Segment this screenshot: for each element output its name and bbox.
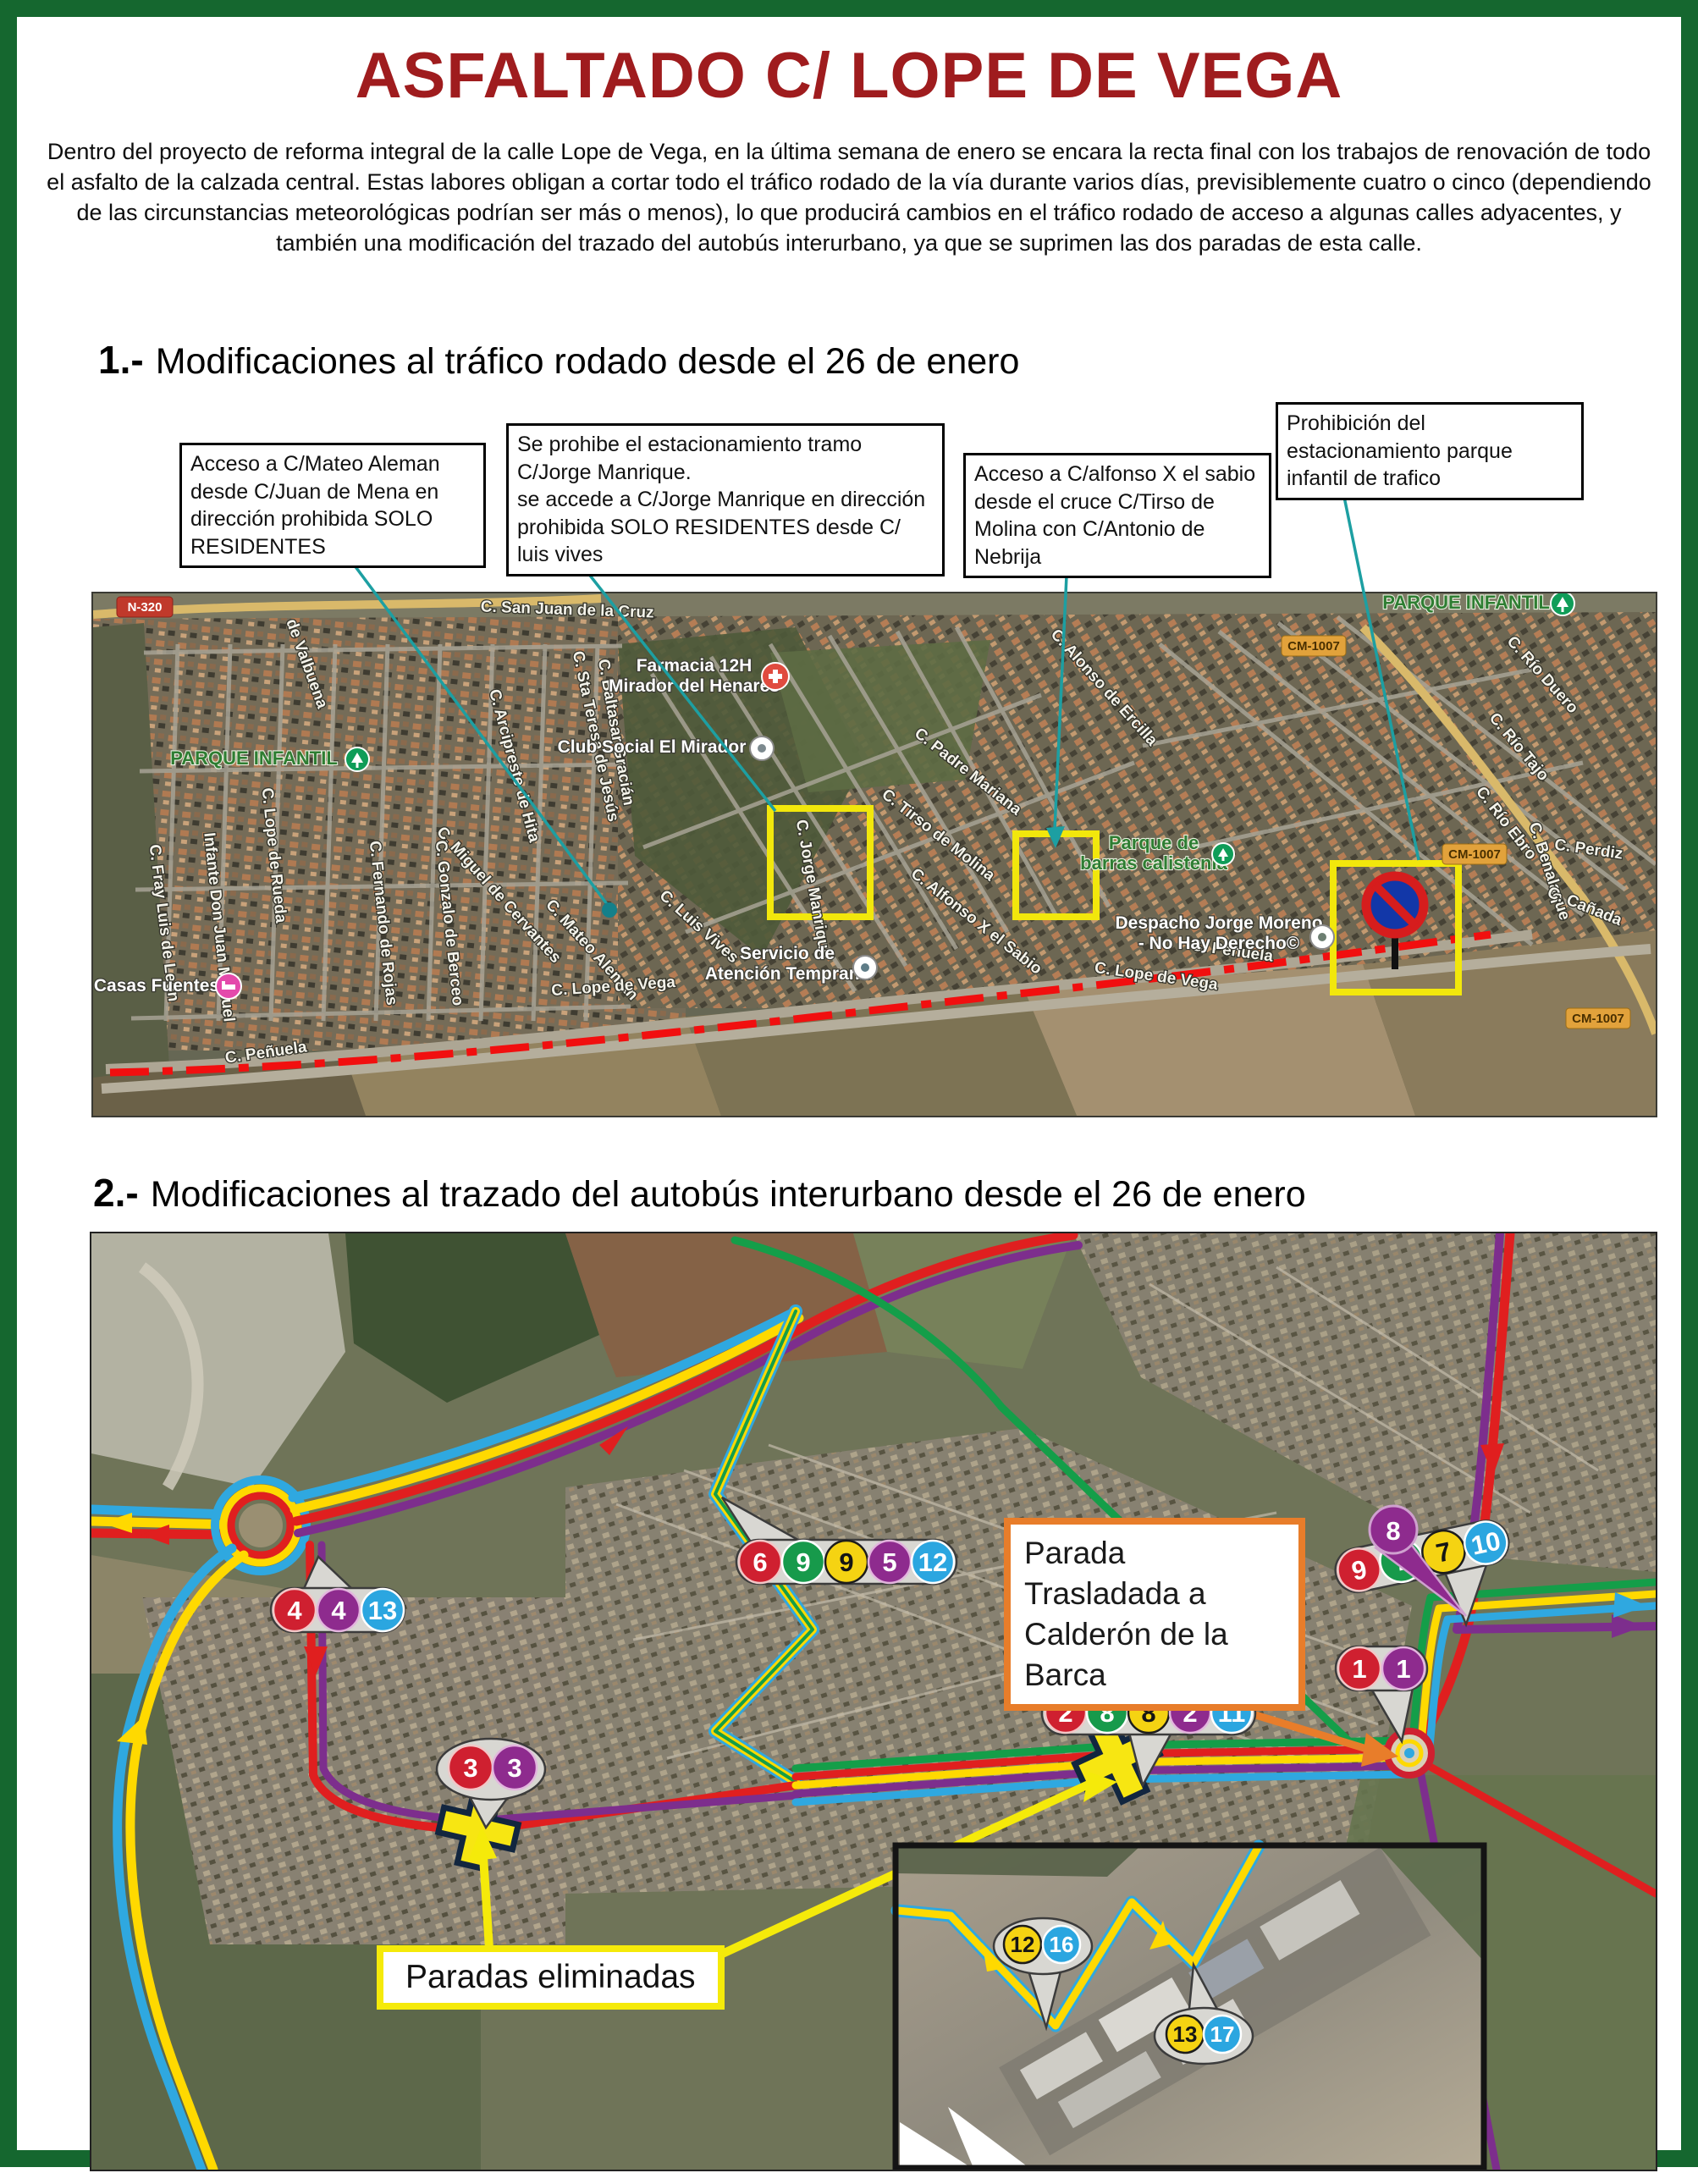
road-badge-cm1007-a: CM-1007 xyxy=(1282,636,1346,656)
road-badge-cm1007-b: CM-1007 xyxy=(1442,844,1507,864)
map-2-bus-routes-satellite: 4 4 13 6 9 9 5 12 9 7 7 10 1 1 2 8 8 2 1… xyxy=(91,1233,1656,2170)
svg-text:- No Hay Derecho©: - No Hay Derecho© xyxy=(1138,934,1300,953)
svg-text:5: 5 xyxy=(882,1547,896,1577)
svg-text:3: 3 xyxy=(507,1753,521,1783)
svg-text:3: 3 xyxy=(463,1753,477,1783)
svg-text:1: 1 xyxy=(1352,1654,1366,1684)
svg-text:CM-1007: CM-1007 xyxy=(1287,639,1340,654)
callout-parque-infantil: Prohibición del estacionamiento parque i… xyxy=(1276,402,1584,500)
svg-text:6: 6 xyxy=(753,1547,767,1577)
poster-asfaltado: { "title": "ASFALTADO C/ LOPE DE VEGA", … xyxy=(0,0,1698,2167)
callout-parada-trasladada: Parada Trasladada a Calderón de la Barca xyxy=(1004,1518,1305,1711)
svg-text:1: 1 xyxy=(1396,1654,1410,1684)
place-pin-icon xyxy=(750,736,774,760)
svg-text:Despacho Jorge Moreno: Despacho Jorge Moreno xyxy=(1115,913,1322,933)
svg-text:PARQUE INFANTIL: PARQUE INFANTIL xyxy=(170,747,338,769)
callout-paradas-eliminadas: Paradas eliminadas xyxy=(377,1945,725,2010)
hotel-pin-icon xyxy=(216,973,241,999)
svg-text:17: 17 xyxy=(1210,2021,1235,2047)
section-1-number: 1.- xyxy=(98,338,144,382)
road-badge-cm1007-c: CM-1007 xyxy=(1566,1008,1630,1029)
tree-pin-icon xyxy=(1212,843,1234,865)
inset-map-industrial: 12 16 13 17 xyxy=(896,1845,1484,2168)
tree-pin-icon xyxy=(1551,593,1574,615)
svg-text:9: 9 xyxy=(839,1547,853,1577)
section-1-heading: 1.-Modificaciones al tráfico rodado desd… xyxy=(98,337,1019,383)
section-1-title: Modificaciones al tráfico rodado desde e… xyxy=(156,341,1020,382)
section-2-title: Modificaciones al trazado del autobús in… xyxy=(151,1174,1306,1215)
tree-pin-icon xyxy=(345,747,369,771)
svg-text:10: 10 xyxy=(1469,1525,1503,1560)
svg-text:CM-1007: CM-1007 xyxy=(1448,847,1501,862)
svg-text:N-320: N-320 xyxy=(128,600,163,615)
poi-club-social: Club Social El Mirador xyxy=(558,736,774,760)
svg-text:12: 12 xyxy=(918,1547,947,1577)
map-2-canvas: 4 4 13 6 9 9 5 12 9 7 7 10 1 1 2 8 8 2 1… xyxy=(91,1233,1656,2170)
callout-jorge-manrique: Se prohibe el estacionamiento tramo C/Jo… xyxy=(506,423,945,576)
svg-text:barras calistenia: barras calistenia xyxy=(1080,852,1227,874)
svg-text:Servicio de: Servicio de xyxy=(740,944,835,963)
svg-text:13: 13 xyxy=(368,1596,397,1625)
svg-text:PARQUE INFANTIL: PARQUE INFANTIL xyxy=(1382,593,1550,613)
map-1-traffic-satellite: C. San Juan de la Cruz C. Sta Teresa de … xyxy=(93,593,1656,1116)
svg-text:Parque de: Parque de xyxy=(1109,832,1199,853)
place-pin-icon xyxy=(1310,925,1334,949)
svg-text:9: 9 xyxy=(796,1547,810,1577)
svg-text:Farmacia 12H: Farmacia 12H xyxy=(637,656,753,676)
svg-text:4: 4 xyxy=(287,1596,302,1625)
map-1-canvas: C. San Juan de la Cruz C. Sta Teresa de … xyxy=(93,593,1656,1116)
svg-text:Casas Fuentes: Casas Fuentes xyxy=(94,976,219,995)
svg-text:Atención Temprana: Atención Temprana xyxy=(705,964,870,984)
place-pin-icon xyxy=(853,956,877,979)
svg-text:8: 8 xyxy=(1386,1516,1400,1546)
svg-text:Club Social El Mirador: Club Social El Mirador xyxy=(558,737,747,757)
callout-mateo-aleman: Acceso a C/Mateo Aleman desde C/Juan de … xyxy=(179,443,486,568)
callout-alfonso-x: Acceso a C/alfonso X el sabio desde el c… xyxy=(963,453,1271,578)
svg-text:13: 13 xyxy=(1173,2021,1198,2047)
intro-paragraph: Dentro del proyecto de reforma integral … xyxy=(42,137,1656,259)
svg-text:4: 4 xyxy=(331,1596,346,1625)
section-2-number: 2.- xyxy=(93,1171,139,1215)
svg-text:Mirador del Henares: Mirador del Henares xyxy=(609,676,780,696)
section-2-heading: 2.-Modificaciones al trazado del autobús… xyxy=(93,1170,1306,1216)
page-title: ASFALTADO C/ LOPE DE VEGA xyxy=(17,39,1681,113)
park-label-infantil-east: PARQUE INFANTIL xyxy=(1382,593,1574,615)
pharmacy-pin-icon xyxy=(762,663,789,690)
svg-text:16: 16 xyxy=(1050,1932,1074,1957)
svg-text:12: 12 xyxy=(1011,1932,1035,1957)
svg-text:CM-1007: CM-1007 xyxy=(1572,1012,1624,1026)
road-badge-n320: N-320 xyxy=(117,597,173,617)
poi-casas-fuentes: Casas Fuentes xyxy=(94,973,241,999)
